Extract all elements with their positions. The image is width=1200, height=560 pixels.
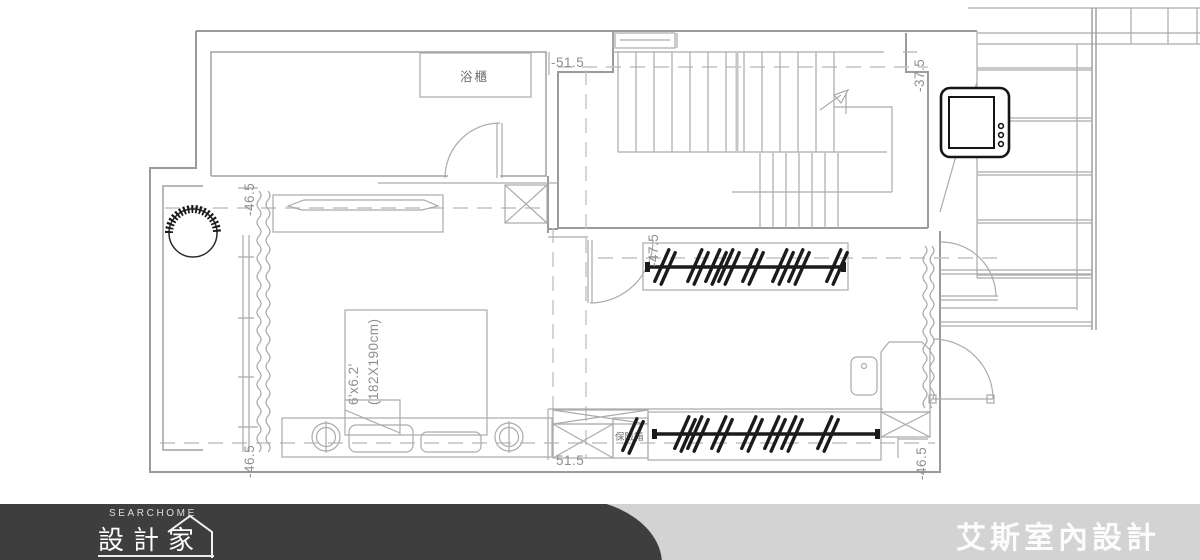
- dashed-centerlines: [160, 67, 1005, 458]
- dim-closet-top: -47.5: [646, 234, 661, 267]
- bed-platform: [282, 418, 552, 457]
- column-pipe-icon: [169, 209, 217, 257]
- dim-left-upper: -46.5: [242, 183, 257, 216]
- right-exterior-band: [940, 8, 1200, 330]
- bed-size-metric-label: (182X190cm): [366, 318, 381, 405]
- wardrobe-top: [643, 243, 849, 290]
- curtain-zigzag-right-icon: [923, 246, 934, 408]
- bathroom-door-icon: [445, 123, 502, 178]
- column-x-box-top: [505, 185, 547, 223]
- outer-walls: [150, 31, 977, 472]
- curtain-zigzag-left-icon: [257, 191, 270, 452]
- dim-left-lower: -46.5: [242, 445, 257, 478]
- dim-bottom-center: 51.5: [556, 453, 584, 468]
- bathroom-area: 浴櫃: [211, 52, 558, 183]
- bed-size-label: 6'x6.2': [346, 363, 361, 405]
- floor-plan-drawing: 浴櫃: [0, 0, 1200, 505]
- right-room: [923, 242, 1092, 408]
- searchome-logo: SEARCHOME 設計家: [98, 508, 228, 560]
- bed: 6'x6.2' (182X190cm): [345, 310, 487, 435]
- wall-control-icon: [851, 357, 877, 395]
- house-outline-icon: [164, 510, 216, 560]
- dim-top-left: -51.5: [551, 55, 584, 70]
- dim-right-lower: -46.5: [914, 447, 929, 480]
- company-name: 艾斯室內設計: [956, 513, 1160, 557]
- right-door-upper-icon: [941, 242, 998, 300]
- staircase: [613, 33, 892, 228]
- dim-top-right: -37.5: [912, 59, 927, 92]
- window-left: [238, 235, 254, 452]
- bedroom: 6'x6.2' (182X190cm): [163, 185, 552, 457]
- right-door-lower-icon: [929, 339, 994, 403]
- side-cabinet: [881, 342, 930, 458]
- bath-cabinet-label: 浴櫃: [460, 70, 489, 84]
- intercom-panel-icon: [941, 88, 1009, 157]
- corridor-door-icon: [548, 237, 653, 303]
- brand-underline: [98, 555, 214, 557]
- footer-bar: SEARCHOME 設計家 艾斯室內設計: [0, 504, 1200, 560]
- headboard-cabinet: [273, 195, 443, 232]
- floor-plan-page: 浴櫃: [0, 0, 1200, 560]
